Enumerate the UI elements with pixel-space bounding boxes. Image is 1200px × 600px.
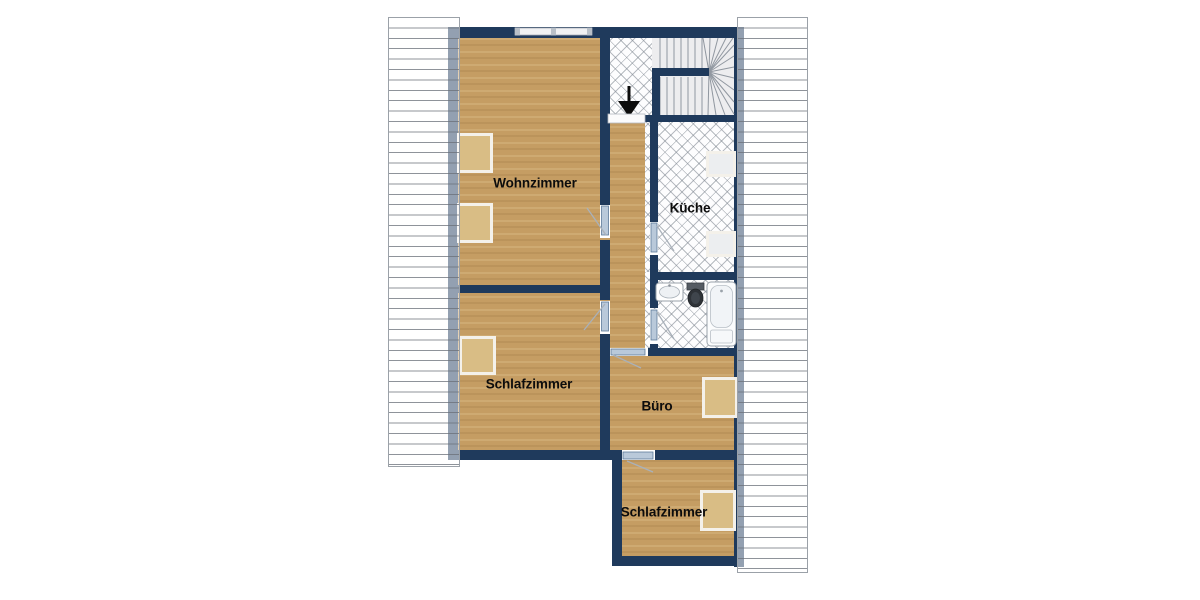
room-label-kueche: Küche [670,201,711,216]
window [457,203,493,243]
wall [650,254,658,308]
staircase [652,38,734,122]
wall [448,450,744,460]
wall [650,122,658,222]
wall [600,115,608,122]
window [457,133,493,173]
wall [448,285,610,293]
window [706,151,736,177]
wall [650,272,744,280]
window [459,336,496,375]
bad-floor [645,272,744,356]
room-label-schlafzimmer-mitte: Schlafzimmer [486,377,573,392]
window [706,231,736,257]
stair-wall [652,68,709,76]
roof-area-right [737,17,808,573]
stair-wall [652,68,660,122]
wall [648,348,744,356]
stair-treads [660,38,734,115]
wall [600,333,610,460]
wall [612,556,744,566]
window [702,377,738,418]
floor-plan: Wohnzimmer Küche Schlafzimmer Büro Schla… [0,0,1200,600]
room-label-buero: Büro [641,399,672,414]
wall [448,27,744,38]
room-label-wohnzimmer: Wohnzimmer [493,176,577,191]
wall [645,115,744,122]
roof-area-left [388,17,460,467]
room-label-schlafzimmer-unten: Schlafzimmer [621,505,708,520]
